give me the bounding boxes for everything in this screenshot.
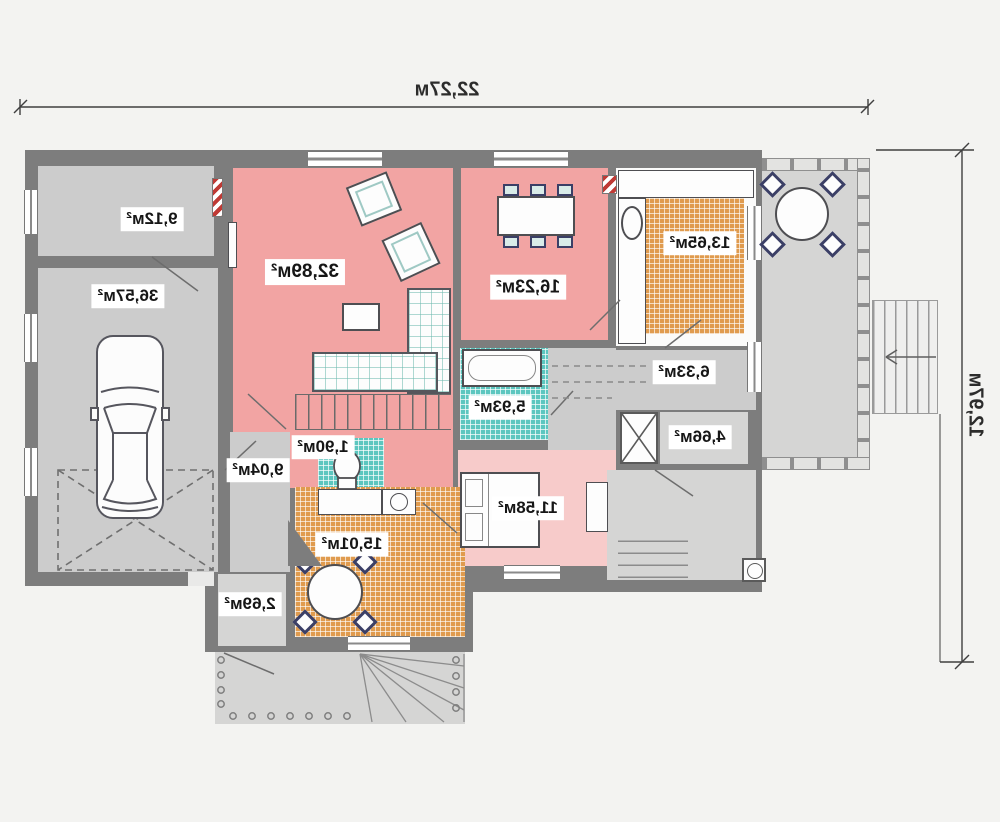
- height-dimension-label: 12,97м: [964, 373, 987, 438]
- floor-plan-canvas: 9,12м² 36,57м² 32,89м² 16,23м² 13,65м² 6…: [0, 0, 1000, 822]
- area-label-wc: 1,90м²: [291, 435, 354, 459]
- area-label-bathroom: 5,93м²: [468, 395, 531, 419]
- window-dining-top: [494, 151, 568, 167]
- area-label-entry-hall: 4,66м²: [668, 425, 731, 449]
- terrace-table: [775, 187, 829, 241]
- kitchen-tile-floor: [644, 196, 744, 334]
- dining-chair: [557, 184, 573, 196]
- window-storage-left: [24, 190, 38, 234]
- terrace-railing-bottom: [762, 457, 870, 470]
- dining-chair: [530, 184, 546, 196]
- chimney-living: [212, 178, 223, 217]
- window-kitchen-terrace: [747, 206, 762, 260]
- window-bedroom-bottom: [504, 565, 560, 580]
- area-label-kitchen: 13,65м²: [664, 231, 737, 255]
- area-label-bedroom: 11,58м²: [492, 496, 564, 520]
- door-hall-terrace: [747, 342, 762, 392]
- terrace-railing-right: [857, 158, 870, 470]
- closet-box: [620, 412, 658, 464]
- area-label-garage: 36,57м²: [92, 284, 165, 308]
- bottom-porch: [215, 652, 465, 724]
- chimney-kitchen: [602, 175, 617, 194]
- porch-steps: [618, 532, 688, 578]
- dining-chair: [503, 184, 519, 196]
- area-label-corridor: 9,04м²: [226, 458, 289, 482]
- window-garage-left-2: [24, 448, 38, 496]
- room-stair-hall: [548, 348, 616, 466]
- area-label-hall: 6,33м²: [652, 360, 715, 384]
- area-label-storage: 9,12м²: [120, 207, 183, 231]
- kitchen-counter-top: [618, 170, 754, 198]
- room-corridor: [230, 432, 290, 572]
- kitchen-sink: [621, 206, 643, 240]
- bathtub: [462, 349, 542, 387]
- radiator: [228, 222, 237, 268]
- window-kitchen-dining-bottom: [348, 636, 410, 651]
- porch-column: [742, 558, 766, 582]
- terrace-railing-top: [762, 158, 870, 171]
- door-vestibule-garage: [188, 572, 214, 586]
- area-label-living: 32,89м²: [265, 259, 345, 285]
- kitchen-dining-sink: [390, 493, 408, 511]
- round-table: [307, 564, 363, 620]
- dining-chair: [557, 236, 573, 248]
- dining-chair: [530, 236, 546, 248]
- room-garage: [38, 268, 218, 572]
- interior-stairs: [295, 394, 451, 430]
- window-living-top: [308, 151, 382, 167]
- sofa-horizontal: [312, 352, 438, 392]
- area-label-kitchen-dining: 15,01м²: [316, 532, 389, 556]
- area-label-vestibule: 2,69м²: [218, 592, 281, 616]
- kitchen-dining-counter: [318, 489, 382, 515]
- area-label-dining: 16,23м²: [490, 275, 566, 300]
- dining-chair: [503, 236, 519, 248]
- exterior-stairs: [872, 300, 938, 414]
- coffee-table: [342, 303, 380, 331]
- dining-table: [497, 196, 575, 236]
- width-dimension-label: 22,27м: [415, 79, 480, 102]
- window-garage-left-1: [24, 314, 38, 362]
- wardrobe: [586, 482, 608, 532]
